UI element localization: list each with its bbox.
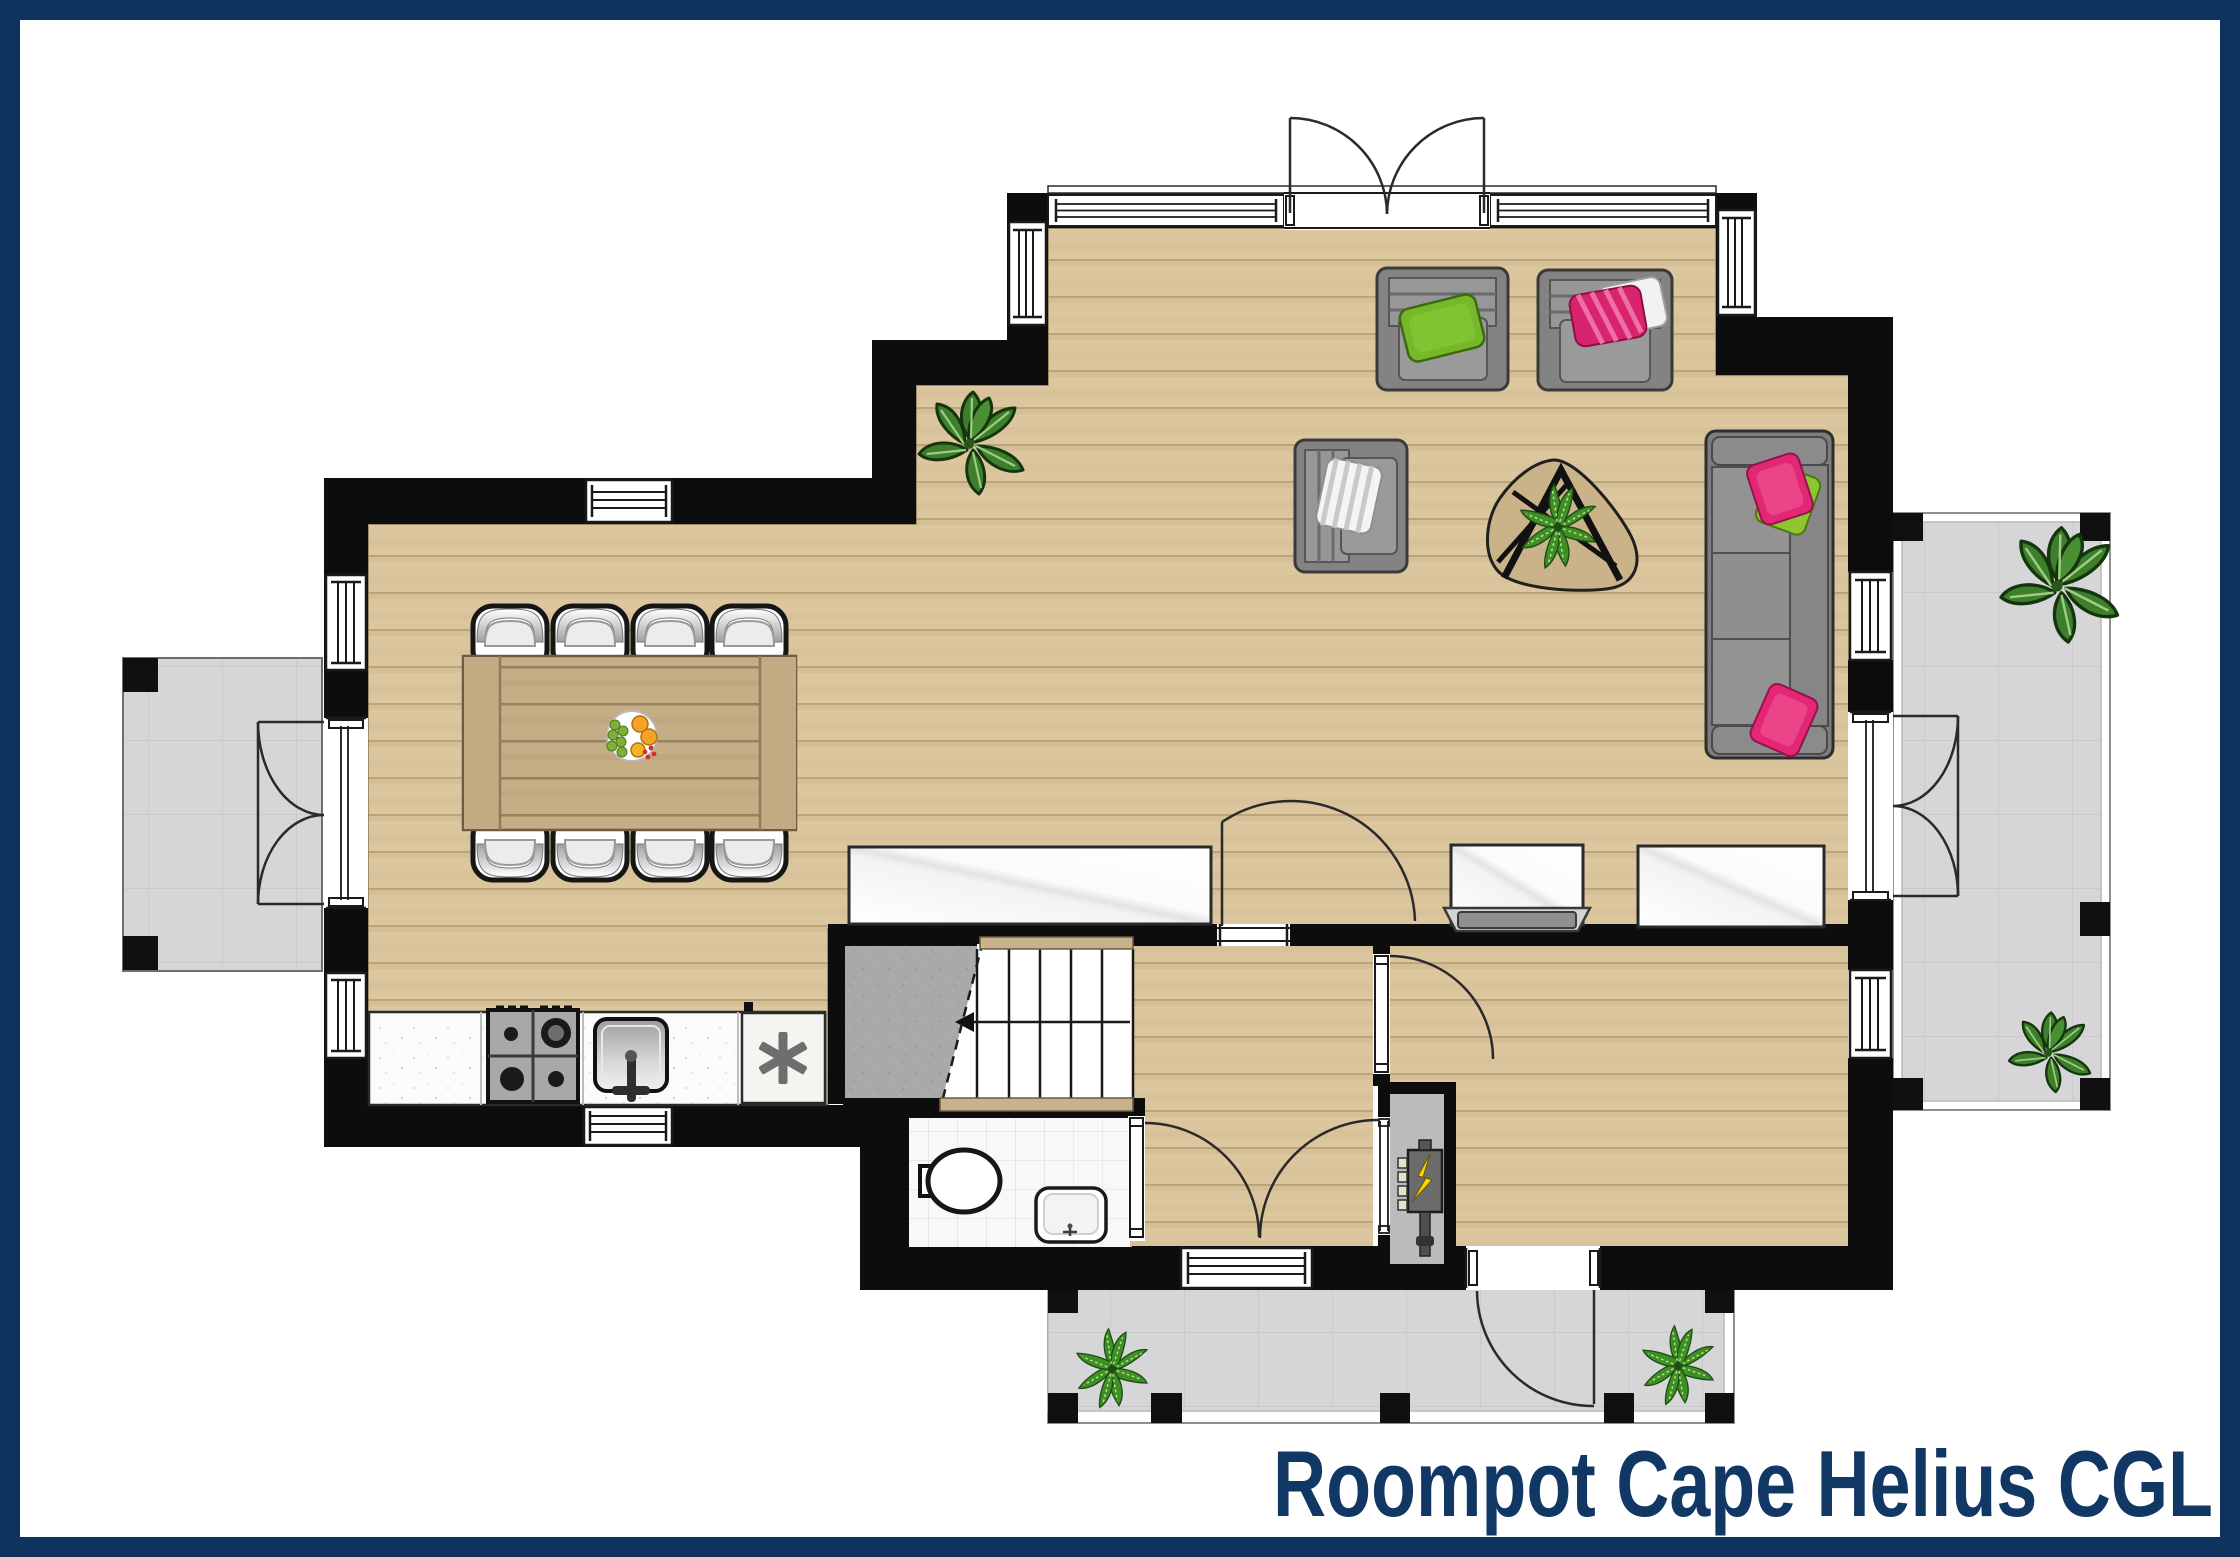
svg-text:Roompot Cape Helius CGL: Roompot Cape Helius CGL — [1273, 1431, 2213, 1536]
